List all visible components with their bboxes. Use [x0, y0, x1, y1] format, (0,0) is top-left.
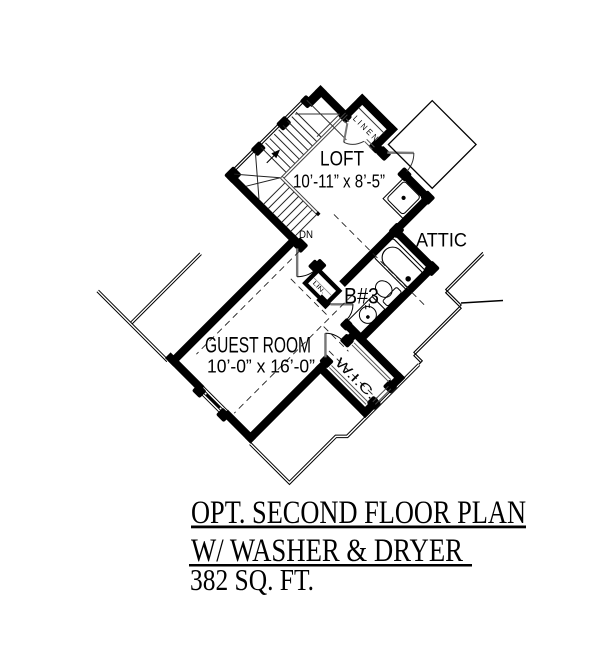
svg-text:ATTIC: ATTIC: [416, 231, 467, 252]
svg-text:DN: DN: [299, 229, 313, 241]
svg-text:LOFT: LOFT: [320, 148, 364, 171]
svg-text:382 SQ. FT.: 382 SQ. FT.: [190, 562, 314, 597]
svg-text:10’-0” x 16’-0”: 10’-0” x 16’-0”: [207, 356, 315, 377]
svg-text:B#3: B#3: [344, 284, 379, 309]
svg-text:GUEST ROOM: GUEST ROOM: [205, 333, 311, 358]
svg-text:10’-11” x 8’-5”: 10’-11” x 8’-5”: [293, 171, 385, 192]
